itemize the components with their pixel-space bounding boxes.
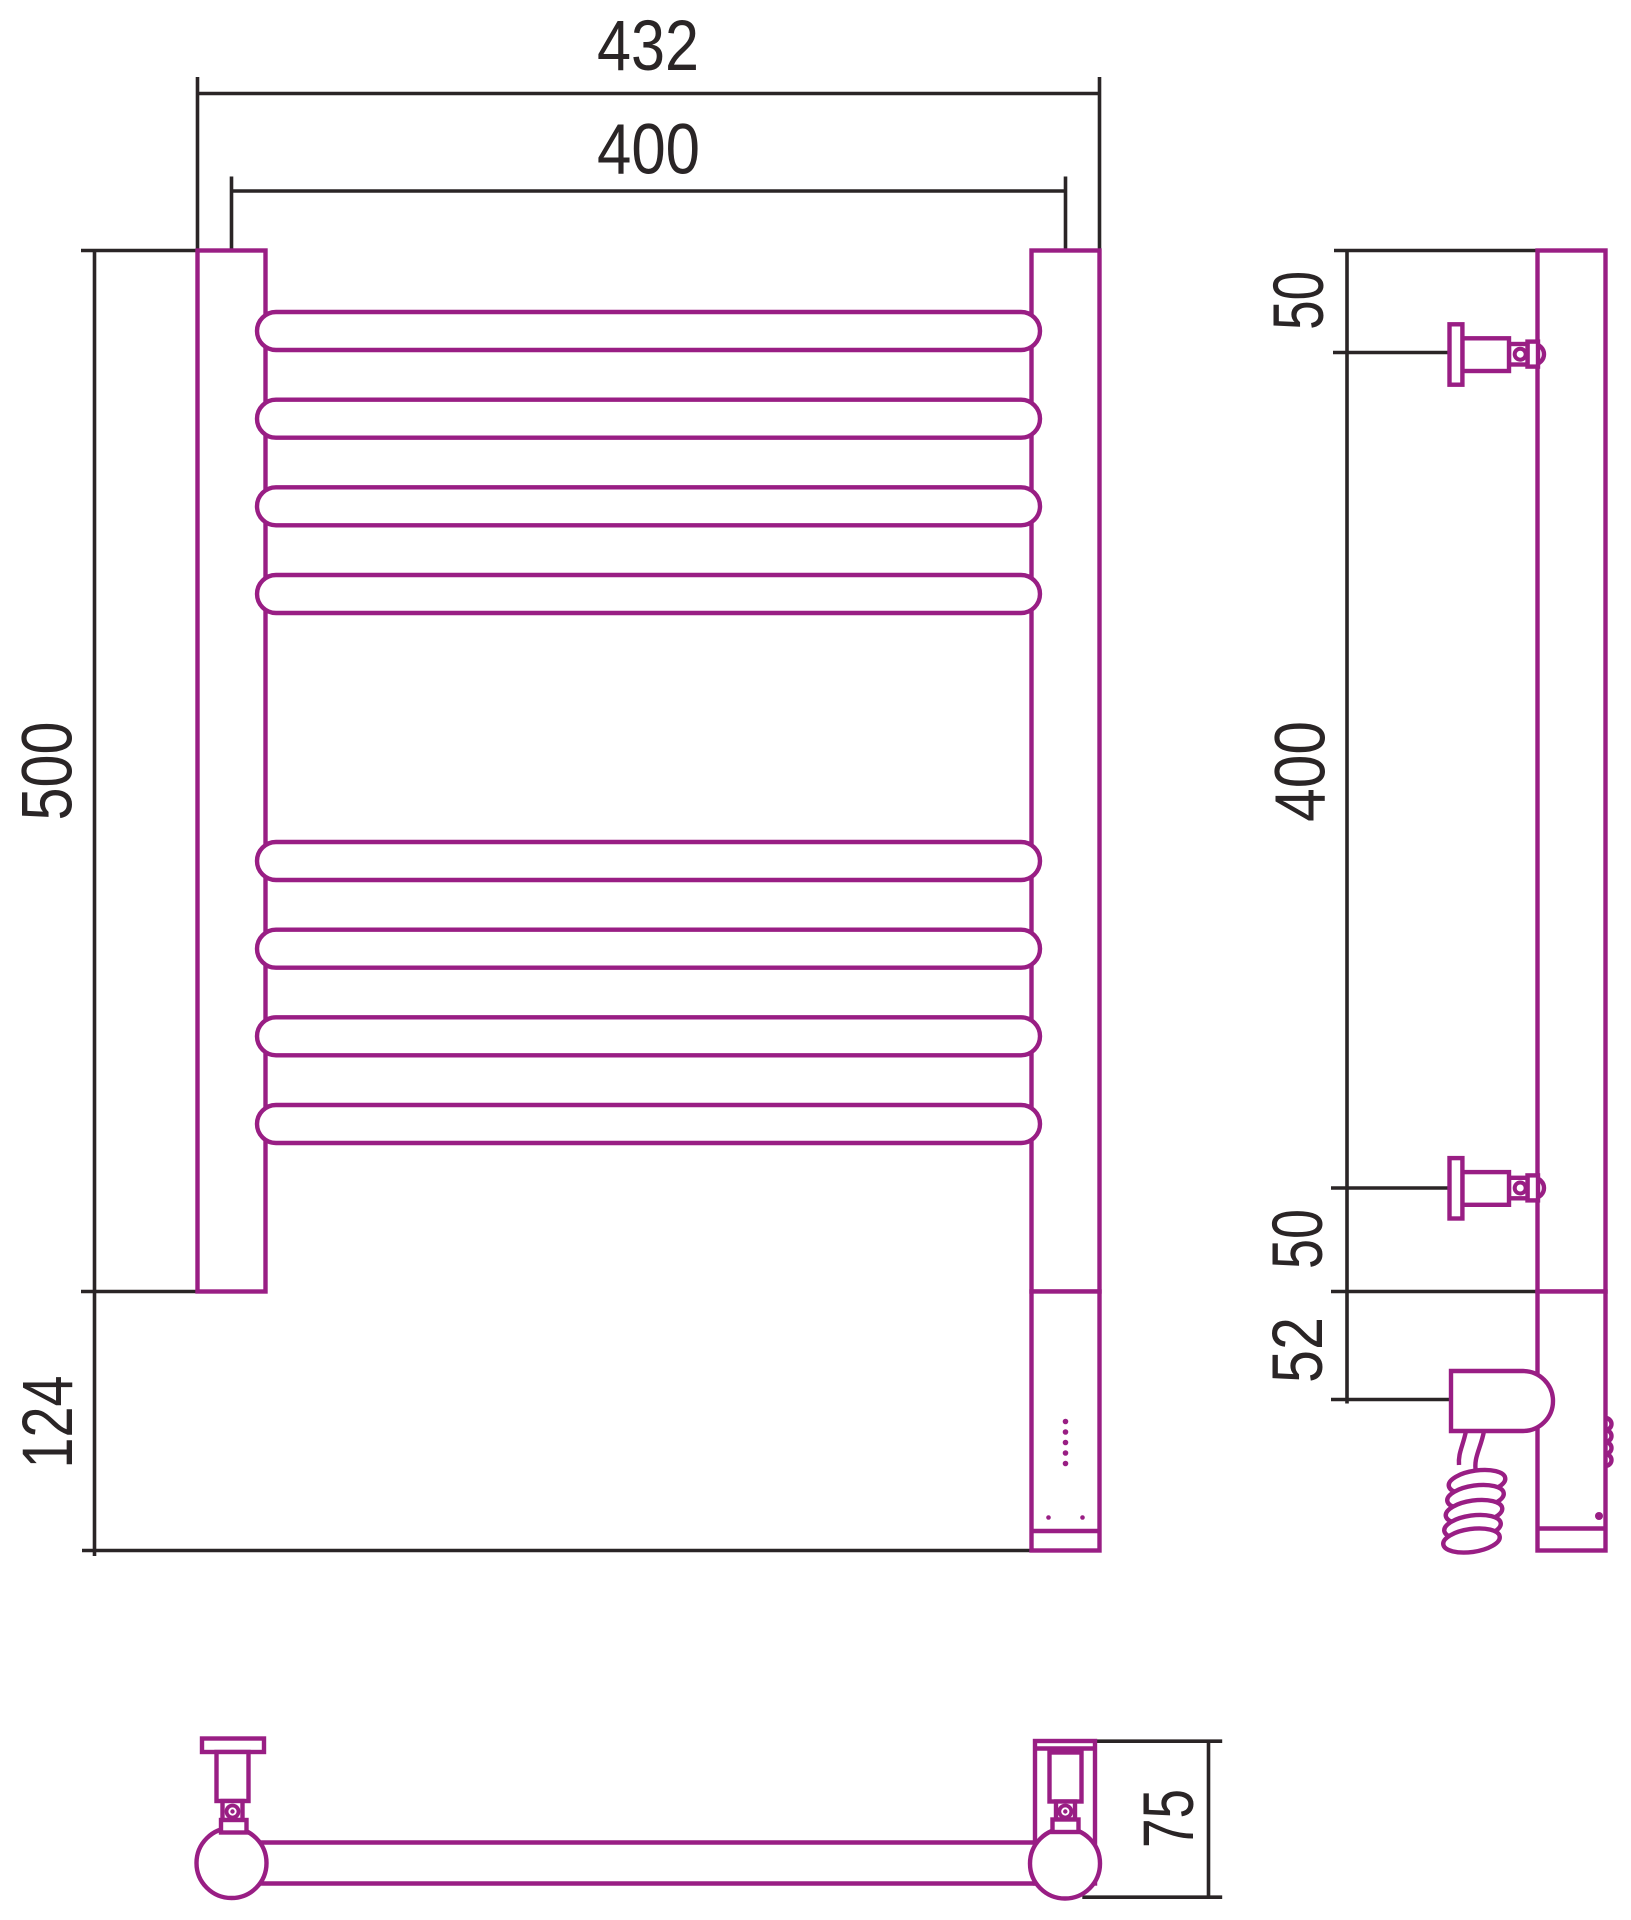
svg-text:432: 432 — [597, 7, 699, 86]
svg-text:124: 124 — [9, 1376, 88, 1469]
svg-text:50: 50 — [1259, 1209, 1338, 1269]
svg-text:400: 400 — [597, 111, 700, 190]
svg-text:500: 500 — [9, 722, 88, 821]
svg-text:400: 400 — [1261, 721, 1340, 822]
svg-text:52: 52 — [1259, 1317, 1338, 1383]
svg-text:75: 75 — [1130, 1789, 1209, 1848]
svg-text:50: 50 — [1260, 271, 1339, 330]
